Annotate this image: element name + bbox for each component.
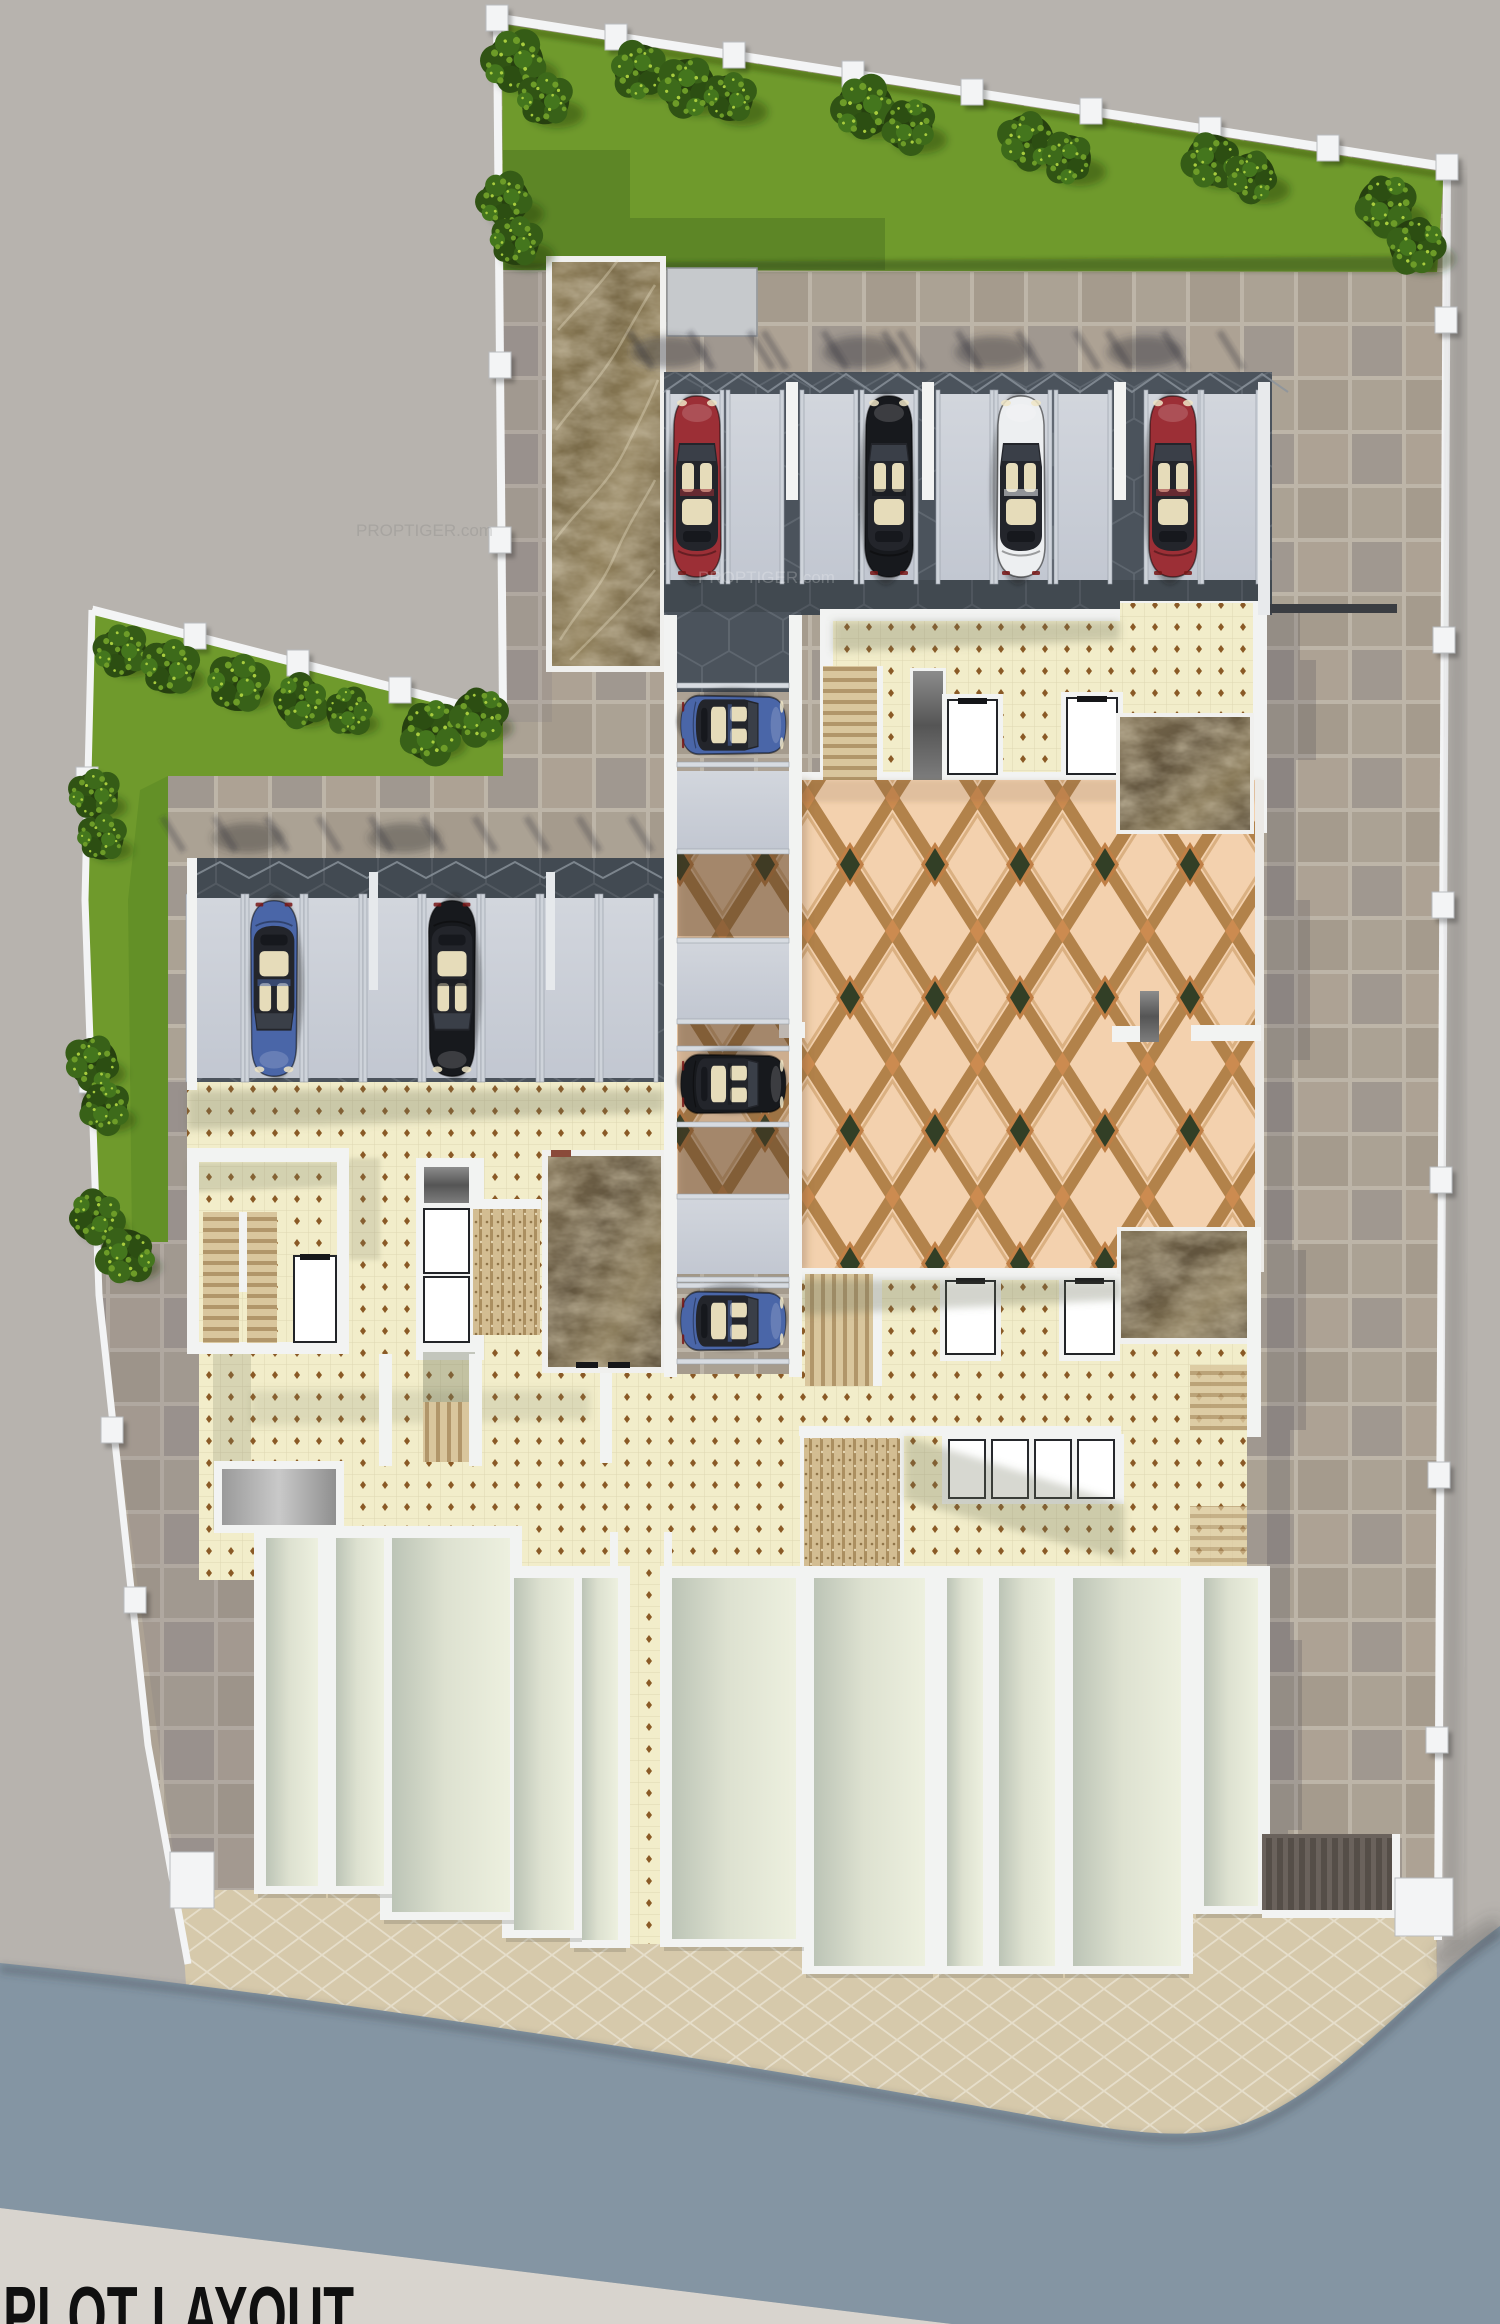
svg-text:PROPTIGER.com: PROPTIGER.com <box>698 568 835 587</box>
svg-text:PROPTIGER.com: PROPTIGER.com <box>356 521 493 540</box>
svg-text:PLOT LAYOUT: PLOT LAYOUT <box>3 2270 354 2324</box>
